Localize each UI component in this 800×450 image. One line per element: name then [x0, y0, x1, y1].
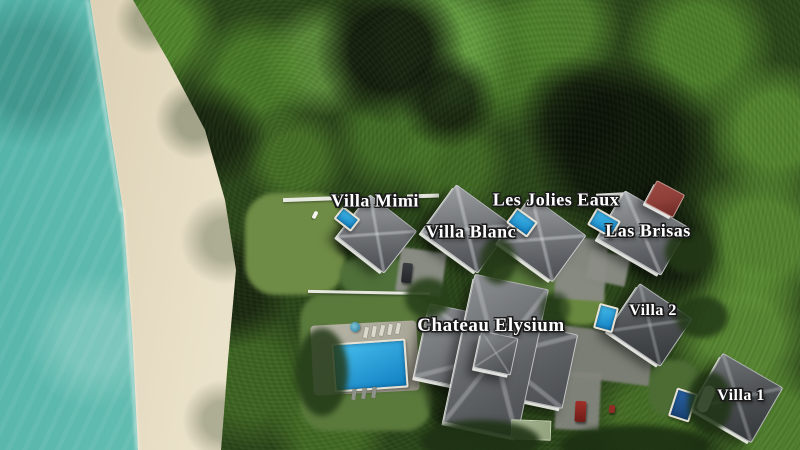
pool-umbrella — [350, 322, 360, 332]
tree-canopy — [296, 328, 348, 416]
label-villa-mimi: Villa Mimi — [331, 191, 419, 212]
tree-canopy — [676, 296, 728, 338]
label-les-jolies-eaux: Les Jolies Eaux — [493, 190, 620, 211]
label-villa-2: Villa 2 — [629, 302, 677, 320]
label-las-brisas: Las Brisas — [605, 221, 691, 242]
label-chateau-elysium: Chateau Elysium — [417, 315, 564, 337]
red-object — [608, 405, 615, 414]
tree-canopy — [405, 278, 451, 318]
parked-car-dark — [401, 263, 413, 284]
aerial-resort-photo: Villa Mimi Les Jolies Eaux Villa Blanc L… — [0, 0, 800, 450]
label-villa-1: Villa 1 — [717, 387, 765, 405]
tree-canopy — [480, 238, 516, 284]
label-villa-blanc: Villa Blanc — [426, 222, 516, 243]
parked-car-red — [574, 401, 586, 423]
lawn — [245, 193, 345, 295]
chateau-elysium-tower — [473, 330, 518, 375]
